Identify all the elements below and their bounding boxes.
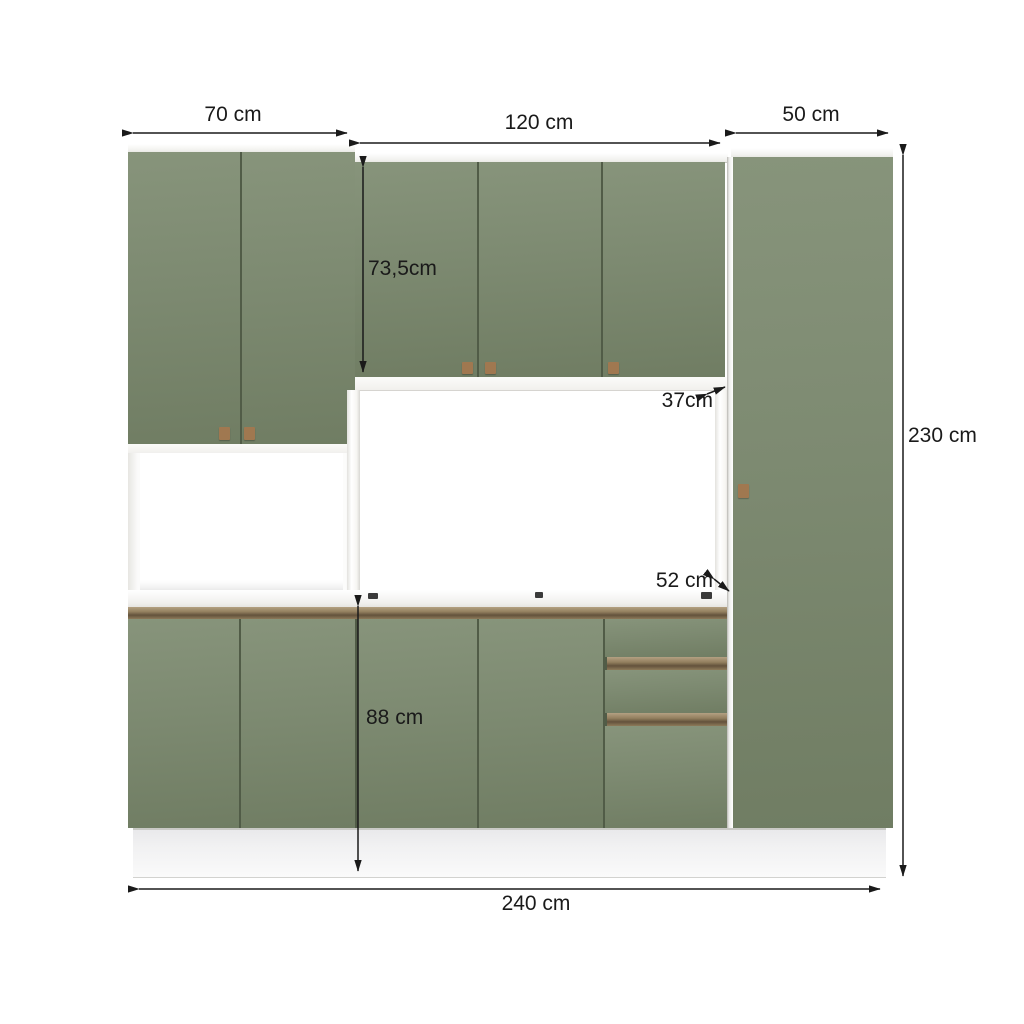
door-handle bbox=[219, 427, 230, 440]
plinth bbox=[133, 828, 886, 878]
dimension-label-wall-depth: 37cm bbox=[643, 389, 713, 412]
handle-rail bbox=[607, 713, 728, 726]
kitchen-dimension-diagram: 70 cm 120 cm 50 cm 73,5cm 37cm 52 cm 88 … bbox=[0, 0, 1024, 1024]
base-door-2 bbox=[241, 619, 355, 828]
drawer-stack bbox=[605, 619, 730, 828]
dimension-label-base-height: 88 cm bbox=[366, 706, 423, 729]
countertop bbox=[128, 590, 728, 608]
drawer-front-1 bbox=[605, 619, 730, 657]
wall-door-3 bbox=[603, 162, 725, 377]
tall-cabinet-door bbox=[733, 157, 893, 828]
base-door-1 bbox=[128, 619, 239, 828]
door-handle bbox=[462, 362, 473, 374]
left-upper-door-right bbox=[242, 152, 355, 444]
drawer-front-2 bbox=[605, 670, 730, 713]
left-upper-door-left bbox=[128, 152, 240, 444]
dimension-label-total-height: 230 cm bbox=[908, 424, 977, 447]
dimension-label-middle-width: 120 cm bbox=[464, 111, 614, 134]
left-tower-upper-cabinet bbox=[128, 152, 355, 444]
counter-fitting bbox=[701, 592, 712, 599]
door-handle bbox=[485, 362, 496, 374]
dimension-label-wall-height: 73,5cm bbox=[368, 257, 437, 280]
middle-side-panel-left bbox=[347, 390, 360, 590]
wall-door-2 bbox=[479, 162, 601, 377]
open-niche bbox=[128, 453, 355, 590]
base-door-4 bbox=[479, 619, 603, 828]
door-handle bbox=[244, 427, 255, 440]
door-handle bbox=[608, 362, 619, 374]
handle-rail bbox=[128, 607, 730, 619]
dimension-label-right-width: 50 cm bbox=[736, 103, 886, 126]
dimension-label-total-width: 240 cm bbox=[461, 892, 611, 915]
counter-fitting bbox=[368, 593, 378, 599]
handle-rail bbox=[607, 657, 728, 670]
dimension-label-counter-depth: 52 cm bbox=[638, 569, 713, 592]
door-handle bbox=[738, 484, 749, 498]
dimension-label-left-width: 70 cm bbox=[158, 103, 308, 126]
counter-fitting bbox=[535, 592, 543, 598]
base-cabinets bbox=[128, 619, 730, 828]
niche-side-panel-left bbox=[128, 453, 140, 590]
drawer-front-3 bbox=[605, 726, 730, 828]
